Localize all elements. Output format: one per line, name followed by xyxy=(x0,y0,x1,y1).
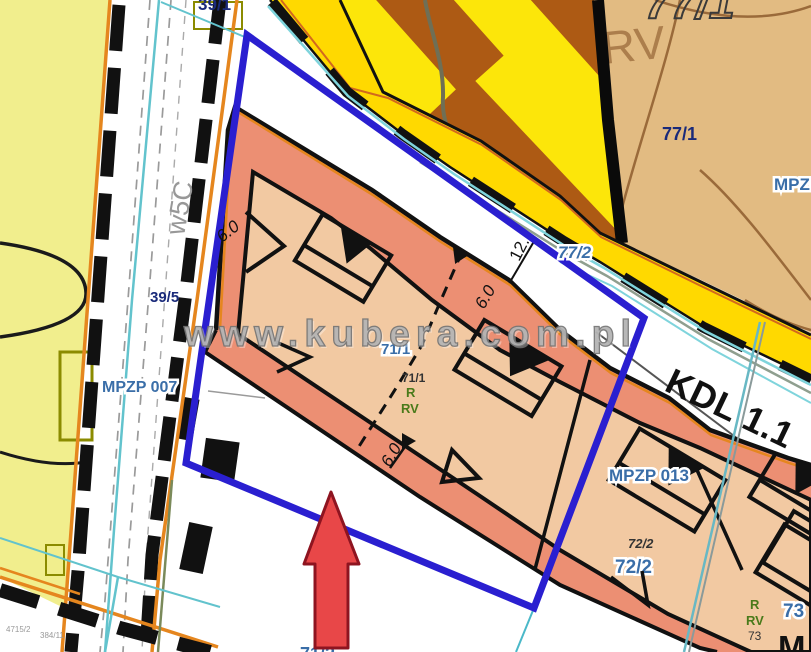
svg-text:R: R xyxy=(406,385,416,400)
svg-text:R: R xyxy=(750,597,760,612)
svg-text:77/2: 77/2 xyxy=(558,243,592,262)
svg-text:72/2: 72/2 xyxy=(615,557,652,578)
svg-text:4715/2: 4715/2 xyxy=(6,625,31,634)
svg-text:39/5: 39/5 xyxy=(150,289,179,306)
svg-text:71/1: 71/1 xyxy=(402,371,426,385)
svg-text:73: 73 xyxy=(748,629,762,643)
svg-text:77/1: 77/1 xyxy=(645,0,735,28)
svg-text:72/2: 72/2 xyxy=(628,536,654,551)
svg-text:RV: RV xyxy=(401,401,419,416)
svg-text:MPZP 013: MPZP 013 xyxy=(609,466,689,485)
svg-text:384/11: 384/11 xyxy=(40,631,64,640)
svg-text:73: 73 xyxy=(783,601,804,622)
svg-text:MPZP 007: MPZP 007 xyxy=(102,379,177,396)
svg-text:www.kubera.com.pl: www.kubera.com.pl xyxy=(183,313,637,354)
svg-text:RV: RV xyxy=(746,613,764,628)
svg-text:77/1: 77/1 xyxy=(662,124,697,144)
svg-text:39/1: 39/1 xyxy=(198,0,231,14)
svg-text:MPZP 0: MPZP 0 xyxy=(774,175,811,194)
svg-text:M: M xyxy=(778,629,806,652)
